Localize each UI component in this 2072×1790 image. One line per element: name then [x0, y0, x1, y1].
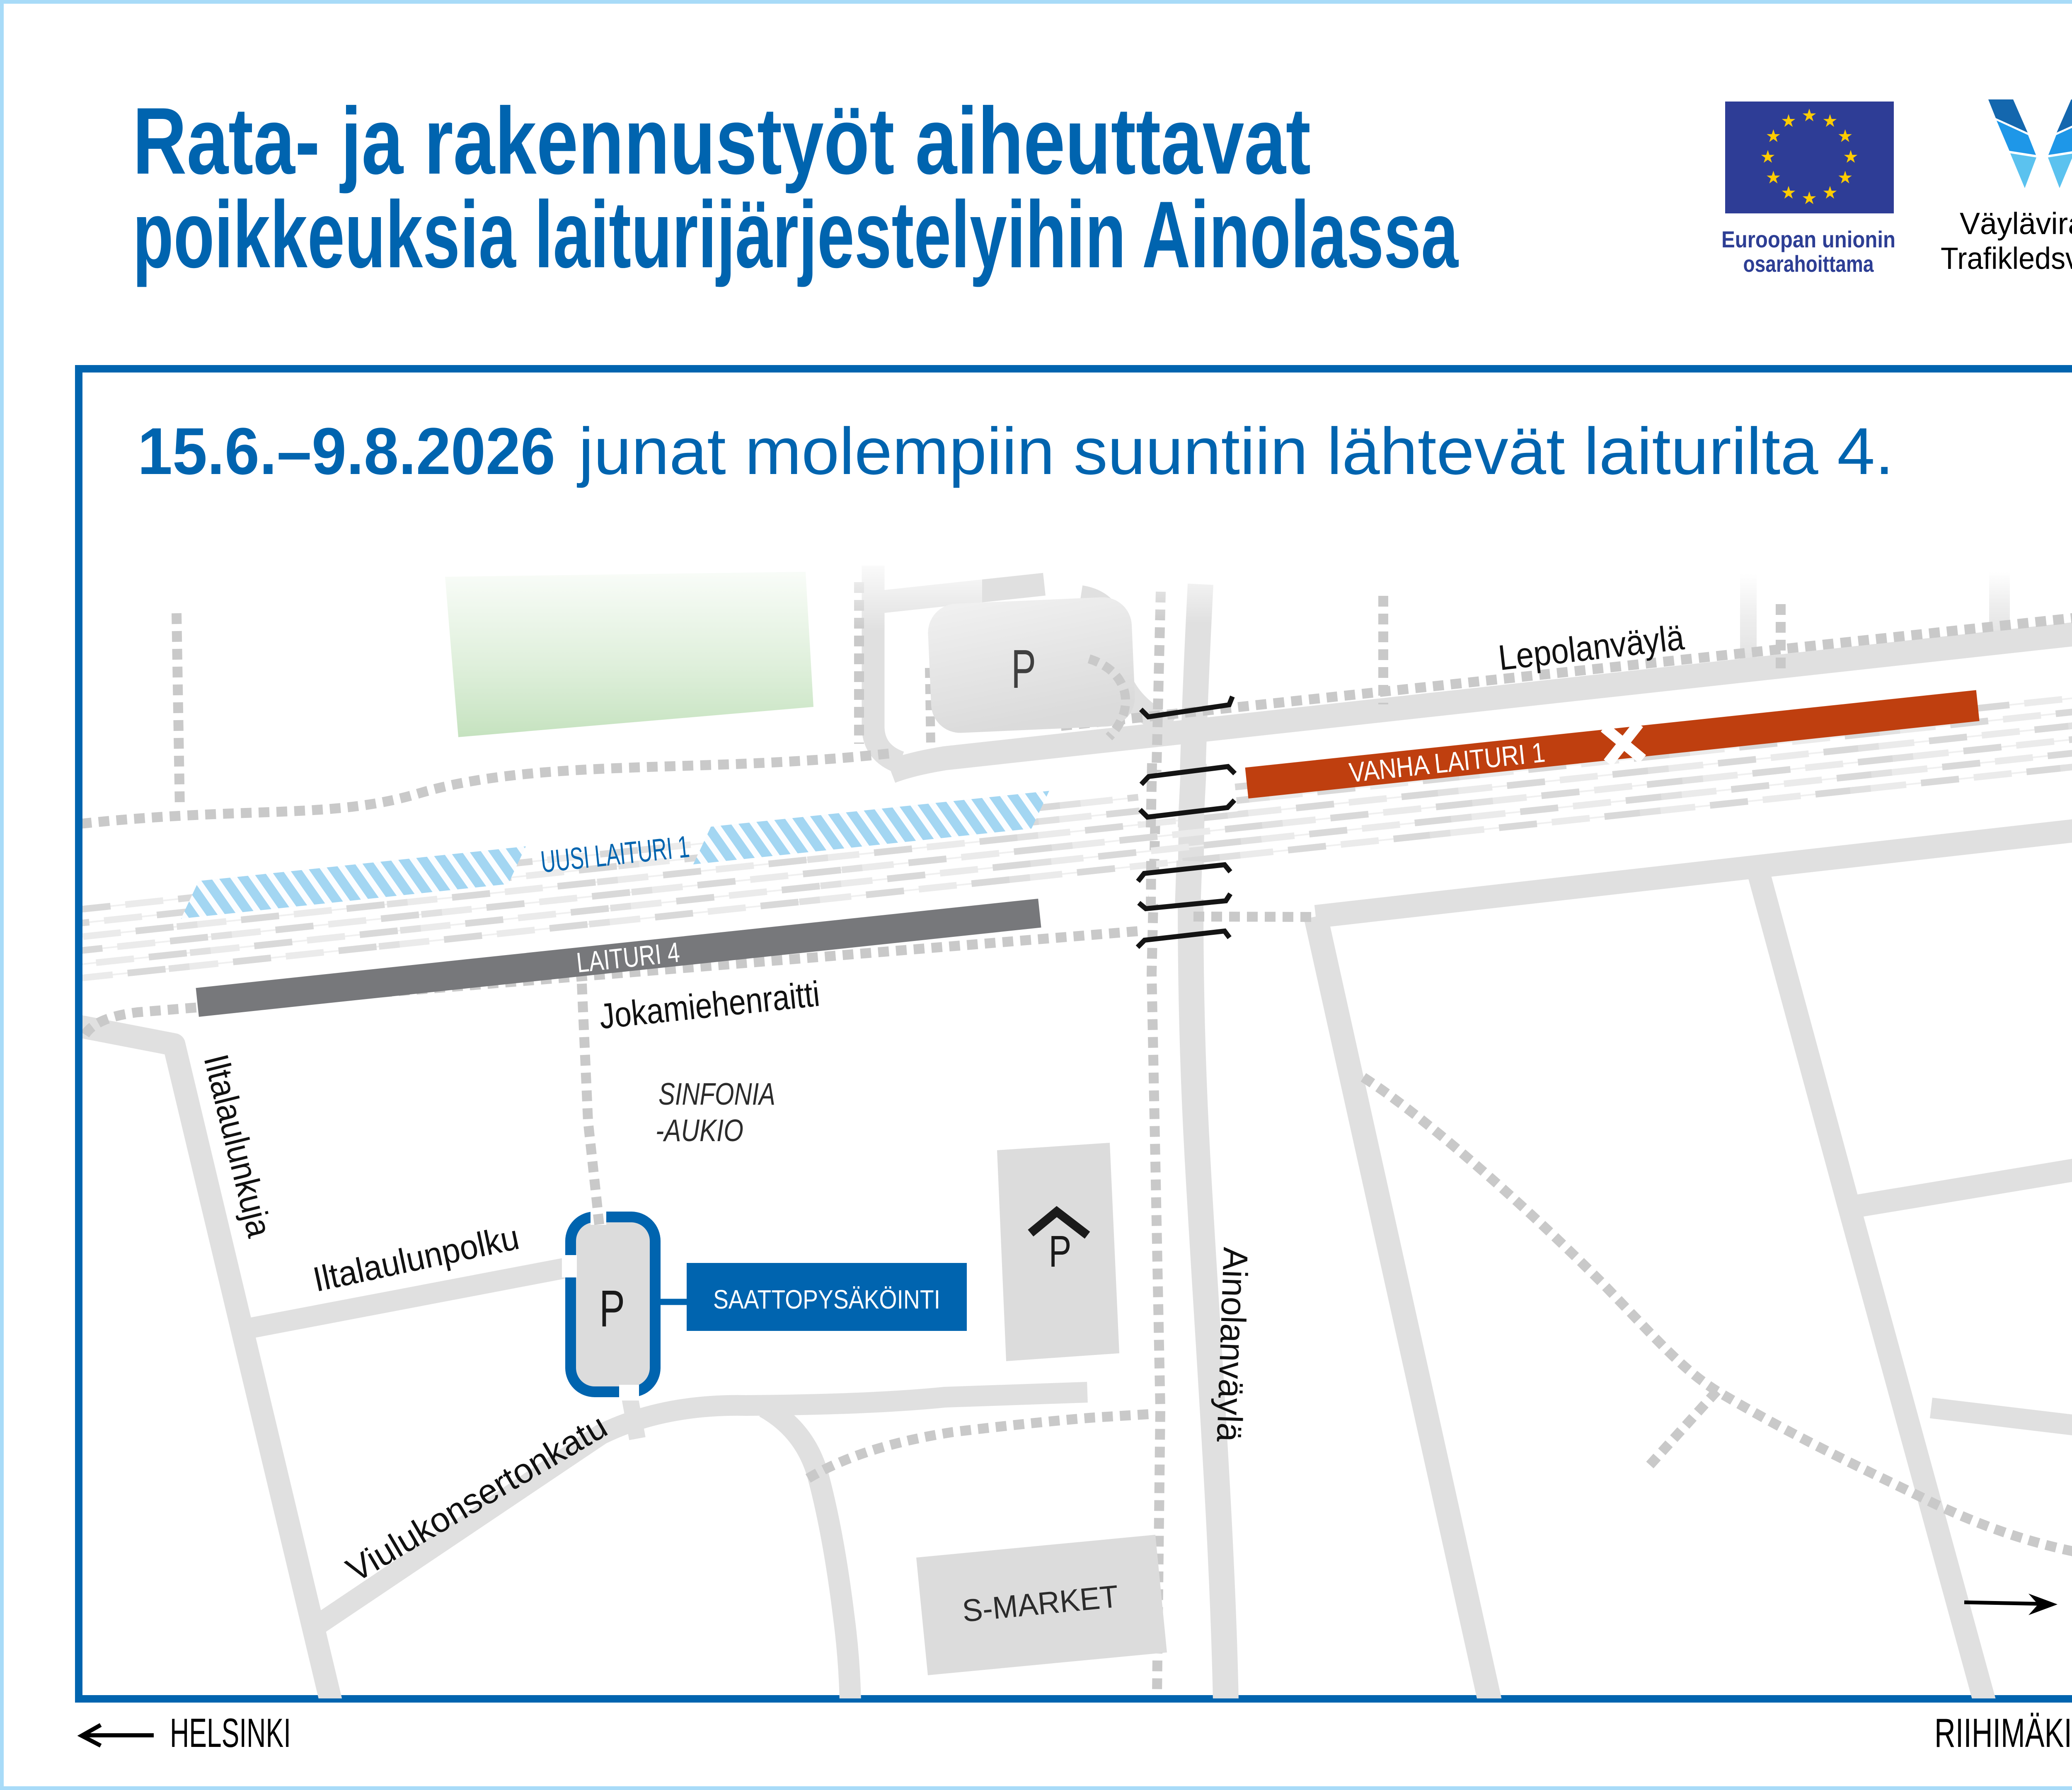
svg-text:Ainolanväylä: Ainolanväylä: [1210, 1247, 1255, 1443]
svg-text:Rata- ja rakennustyöt aiheutta: Rata- ja rakennustyöt aiheuttavat: [133, 88, 1311, 194]
svg-text:Trafikledsverket: Trafikledsverket: [1941, 241, 2072, 276]
svg-text:15.6.–9.8.2026: 15.6.–9.8.2026: [138, 414, 555, 488]
svg-text:HELSINKI: HELSINKI: [170, 1710, 291, 1756]
svg-text:RIIHIMÄKI: RIIHIMÄKI: [1934, 1710, 2072, 1756]
svg-text:SAATTOPYSÄKÖINTI: SAATTOPYSÄKÖINTI: [713, 1284, 940, 1314]
svg-text:P: P: [1011, 639, 1036, 699]
svg-text:P: P: [599, 1280, 625, 1338]
svg-text:P: P: [1049, 1226, 1072, 1276]
svg-text:junat molempiin suuntiin lähte: junat molempiin suuntiin lähtevät laitur…: [577, 414, 1894, 488]
svg-text:osarahoittama: osarahoittama: [1743, 251, 1874, 277]
svg-text:-AUKIO: -AUKIO: [656, 1113, 743, 1148]
svg-text:poikkeuksia laiturijärjestelyi: poikkeuksia laiturijärjestelyihin Ainola…: [133, 181, 1459, 288]
svg-text:Väylävirasto: Väylävirasto: [1960, 206, 2072, 241]
svg-text:SINFONIA: SINFONIA: [658, 1076, 775, 1111]
svg-text:Euroopan unionin: Euroopan unionin: [1721, 226, 1895, 252]
